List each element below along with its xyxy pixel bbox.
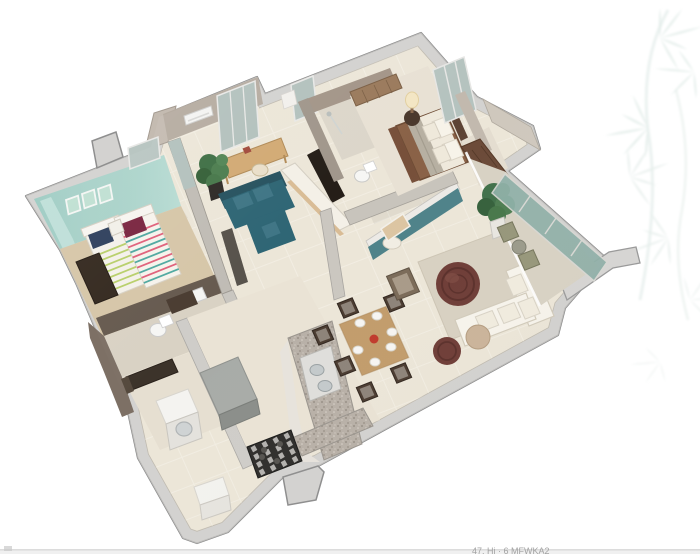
svg-text:47, Hi · 6 MFWKA2: 47, Hi · 6 MFWKA2 bbox=[472, 546, 550, 554]
